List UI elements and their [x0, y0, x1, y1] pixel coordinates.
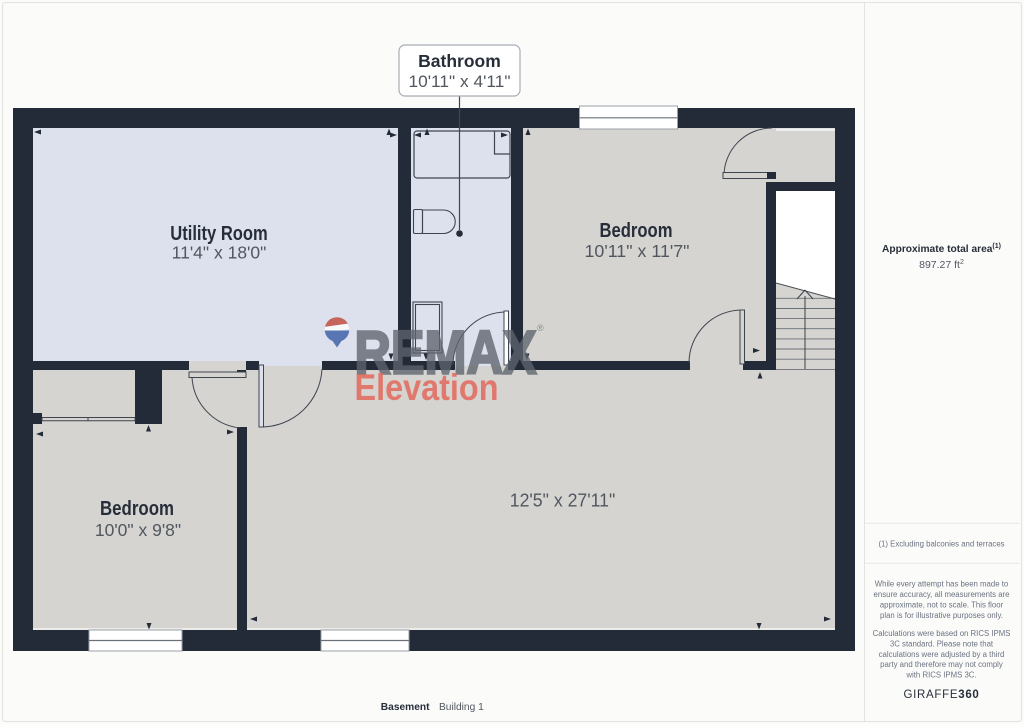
- svg-text:11'4" x 18'0": 11'4" x 18'0": [172, 243, 267, 263]
- svg-text:12'5" x 27'11": 12'5" x 27'11": [510, 490, 616, 511]
- svg-text:calculations were adjusted by: calculations were adjusted by a third: [879, 650, 1005, 659]
- svg-text:Bathroom: Bathroom: [418, 51, 501, 71]
- svg-text:Bedroom: Bedroom: [100, 498, 174, 520]
- svg-text:(1) Excluding balconies and te: (1) Excluding balconies and terraces: [878, 540, 1004, 549]
- svg-text:Calculations were based on RIC: Calculations were based on RICS IPMS: [873, 629, 1011, 638]
- svg-text:ensure accuracy, all measureme: ensure accuracy, all measurements are: [874, 590, 1010, 599]
- svg-text:Bedroom: Bedroom: [600, 220, 673, 242]
- svg-text:Approximate total area(1): Approximate total area(1): [882, 243, 1001, 255]
- svg-text:10'0" x 9'8": 10'0" x 9'8": [95, 520, 181, 540]
- svg-text:3C standard. Please note that: 3C standard. Please note that: [890, 639, 994, 648]
- svg-text:party and therefore may not co: party and therefore may not comply: [880, 660, 1003, 669]
- svg-text:While every attempt has been m: While every attempt has been made to: [875, 580, 1009, 589]
- svg-text:Basement: Basement: [381, 702, 430, 713]
- svg-text:with RICS IPMS 3C.: with RICS IPMS 3C.: [905, 671, 976, 680]
- svg-text:plan is for illustrative purpo: plan is for illustrative purposes only.: [880, 611, 1003, 620]
- svg-text:Building 1: Building 1: [439, 702, 484, 713]
- svg-text:10'11" x 11'7": 10'11" x 11'7": [585, 241, 690, 261]
- svg-text:®: ®: [537, 323, 544, 333]
- svg-text:10'11" x 4'11": 10'11" x 4'11": [409, 73, 511, 91]
- svg-text:Elevation: Elevation: [355, 367, 499, 408]
- svg-text:approximate, not to scale. Thi: approximate, not to scale. This floor: [880, 601, 1004, 610]
- svg-text:GIRAFFE360: GIRAFFE360: [903, 689, 979, 701]
- svg-text:897.27 ft2: 897.27 ft2: [919, 259, 964, 271]
